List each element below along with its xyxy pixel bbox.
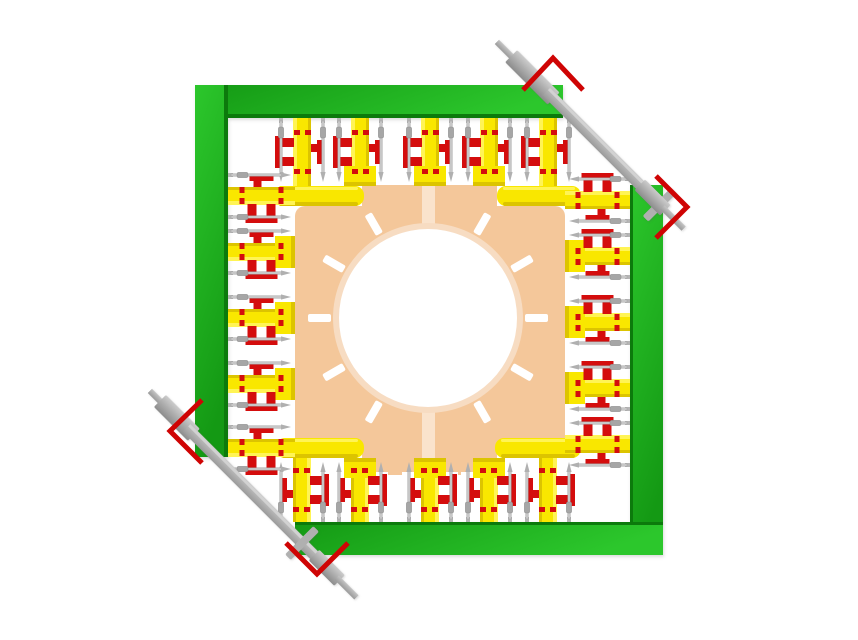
clamp-notch	[293, 468, 299, 473]
clamp-flange	[445, 140, 450, 164]
clamp-notch	[362, 468, 368, 473]
clamp-flange	[504, 140, 509, 164]
frame-right-bar	[630, 185, 663, 555]
mechanism-diagram	[0, 0, 858, 640]
clamp-notch	[279, 320, 284, 326]
clamp-notch	[279, 375, 284, 381]
clamp-notch	[550, 468, 556, 473]
clamp-notch	[492, 169, 498, 174]
clamp-notch	[576, 314, 581, 320]
shaft-tip	[335, 576, 359, 600]
clamp-notch	[551, 169, 557, 174]
clamp-notch	[539, 507, 545, 512]
clamp-notch	[551, 130, 557, 135]
clamp-notch	[433, 130, 439, 135]
clamp-notch	[615, 192, 620, 198]
clamp-notch	[615, 391, 620, 397]
clamp-flange	[250, 364, 274, 369]
actuator-unit-right-1	[565, 172, 630, 228]
clamp-notch	[240, 386, 245, 392]
dial-tick	[525, 314, 548, 322]
frame-bottom-bar	[295, 522, 663, 555]
actuator-unit-right-3	[565, 294, 630, 350]
clamp-notch	[539, 468, 545, 473]
clamp-flange	[282, 478, 287, 502]
clamp-notch	[615, 436, 620, 442]
actuator-unit-bottom-4	[461, 458, 517, 522]
actuator-unit-right-4	[565, 360, 630, 416]
clamp-notch	[293, 507, 299, 512]
clamp-notch	[240, 320, 245, 326]
clamp-notch	[481, 130, 487, 135]
clamp-notch	[540, 169, 546, 174]
clamp-notch	[240, 375, 245, 381]
clamp-notch	[481, 169, 487, 174]
clamp-notch	[362, 507, 368, 512]
clamp-notch	[432, 468, 438, 473]
clamp-notch	[351, 507, 357, 512]
clamp-notch	[433, 169, 439, 174]
stage-plate	[295, 185, 565, 475]
dial-tick	[308, 314, 331, 322]
clamp-notch	[279, 243, 284, 249]
clamp-notch	[363, 130, 369, 135]
clamp-flange	[586, 459, 610, 464]
clamp-notch	[240, 309, 245, 315]
clamp-flange	[317, 140, 322, 164]
clamp-notch	[492, 130, 498, 135]
clamp-flange	[586, 403, 610, 408]
clamp-notch	[279, 187, 284, 193]
actuator-unit-left-3	[228, 290, 295, 346]
clamp-notch	[421, 468, 427, 473]
clamp-notch	[421, 507, 427, 512]
clamp-flange	[340, 478, 345, 502]
clamp-notch	[279, 386, 284, 392]
clamp-notch	[615, 314, 620, 320]
clamp-notch	[576, 203, 581, 209]
actuator-unit-left-2	[228, 224, 295, 280]
clamp-notch	[279, 254, 284, 260]
actuator-unit-bottom-5	[520, 458, 576, 522]
clamp-notch	[576, 259, 581, 265]
clamp-notch	[540, 130, 546, 135]
clamp-flange	[528, 478, 533, 502]
clamp-notch	[351, 468, 357, 473]
clamp-notch	[240, 450, 245, 456]
actuator-unit-top-3	[402, 118, 458, 186]
clamp-notch	[363, 169, 369, 174]
clamp-flange	[469, 478, 474, 502]
clamp-notch	[304, 507, 310, 512]
clamp-notch	[240, 187, 245, 193]
clamp-flange	[410, 478, 415, 502]
clamp-notch	[240, 254, 245, 260]
actuator-unit-right-2	[565, 228, 630, 284]
clamp-notch	[576, 391, 581, 397]
clamp-notch	[240, 439, 245, 445]
clamp-notch	[305, 130, 311, 135]
clamp-flange	[250, 232, 274, 237]
clamp-notch	[576, 380, 581, 386]
clamp-flange	[586, 215, 610, 220]
clamp-notch	[615, 380, 620, 386]
actuator-unit-left-4	[228, 356, 295, 412]
clamp-notch	[576, 325, 581, 331]
actuator-unit-bottom-2	[332, 458, 388, 522]
clamp-notch	[576, 192, 581, 198]
clamp-flange	[375, 140, 380, 164]
actuator-unit-right-5	[565, 416, 630, 472]
clamp-notch	[480, 468, 486, 473]
clamp-notch	[305, 169, 311, 174]
frame-top-bar	[195, 85, 563, 118]
clamp-notch	[352, 169, 358, 174]
clamp-flange	[586, 271, 610, 276]
clamp-notch	[576, 447, 581, 453]
actuator-unit-top-5	[520, 118, 576, 186]
actuator-unit-left-1	[228, 168, 295, 224]
clamp-notch	[480, 507, 486, 512]
clamp-notch	[615, 248, 620, 254]
clamp-notch	[294, 130, 300, 135]
clamp-notch	[576, 436, 581, 442]
clamp-flange	[250, 298, 274, 303]
clamp-notch	[422, 169, 428, 174]
clamp-flange	[586, 337, 610, 342]
clamp-notch	[615, 203, 620, 209]
clamp-notch	[615, 447, 620, 453]
diagram-canvas	[0, 0, 858, 640]
clamp-notch	[352, 130, 358, 135]
clamp-notch	[491, 507, 497, 512]
clamp-notch	[576, 248, 581, 254]
actuator-unit-bottom-3	[402, 458, 458, 522]
clamp-notch	[279, 198, 284, 204]
actuator-unit-top-2	[332, 118, 388, 186]
clamp-notch	[615, 325, 620, 331]
clamp-notch	[422, 130, 428, 135]
clamp-notch	[491, 468, 497, 473]
clamp-notch	[279, 439, 284, 445]
clamp-notch	[432, 507, 438, 512]
clamp-notch	[294, 169, 300, 174]
clamp-flange	[250, 176, 274, 181]
clamp-notch	[279, 309, 284, 315]
clamp-notch	[279, 450, 284, 456]
clamp-flange	[250, 428, 274, 433]
actuator-unit-top-4	[461, 118, 517, 186]
clamp-notch	[240, 198, 245, 204]
clamp-notch	[240, 243, 245, 249]
clamp-notch	[304, 468, 310, 473]
aperture-disc	[339, 229, 517, 407]
actuator-unit-left-5	[228, 420, 295, 476]
clamp-notch	[550, 507, 556, 512]
clamp-flange	[563, 140, 568, 164]
clamp-notch	[615, 259, 620, 265]
